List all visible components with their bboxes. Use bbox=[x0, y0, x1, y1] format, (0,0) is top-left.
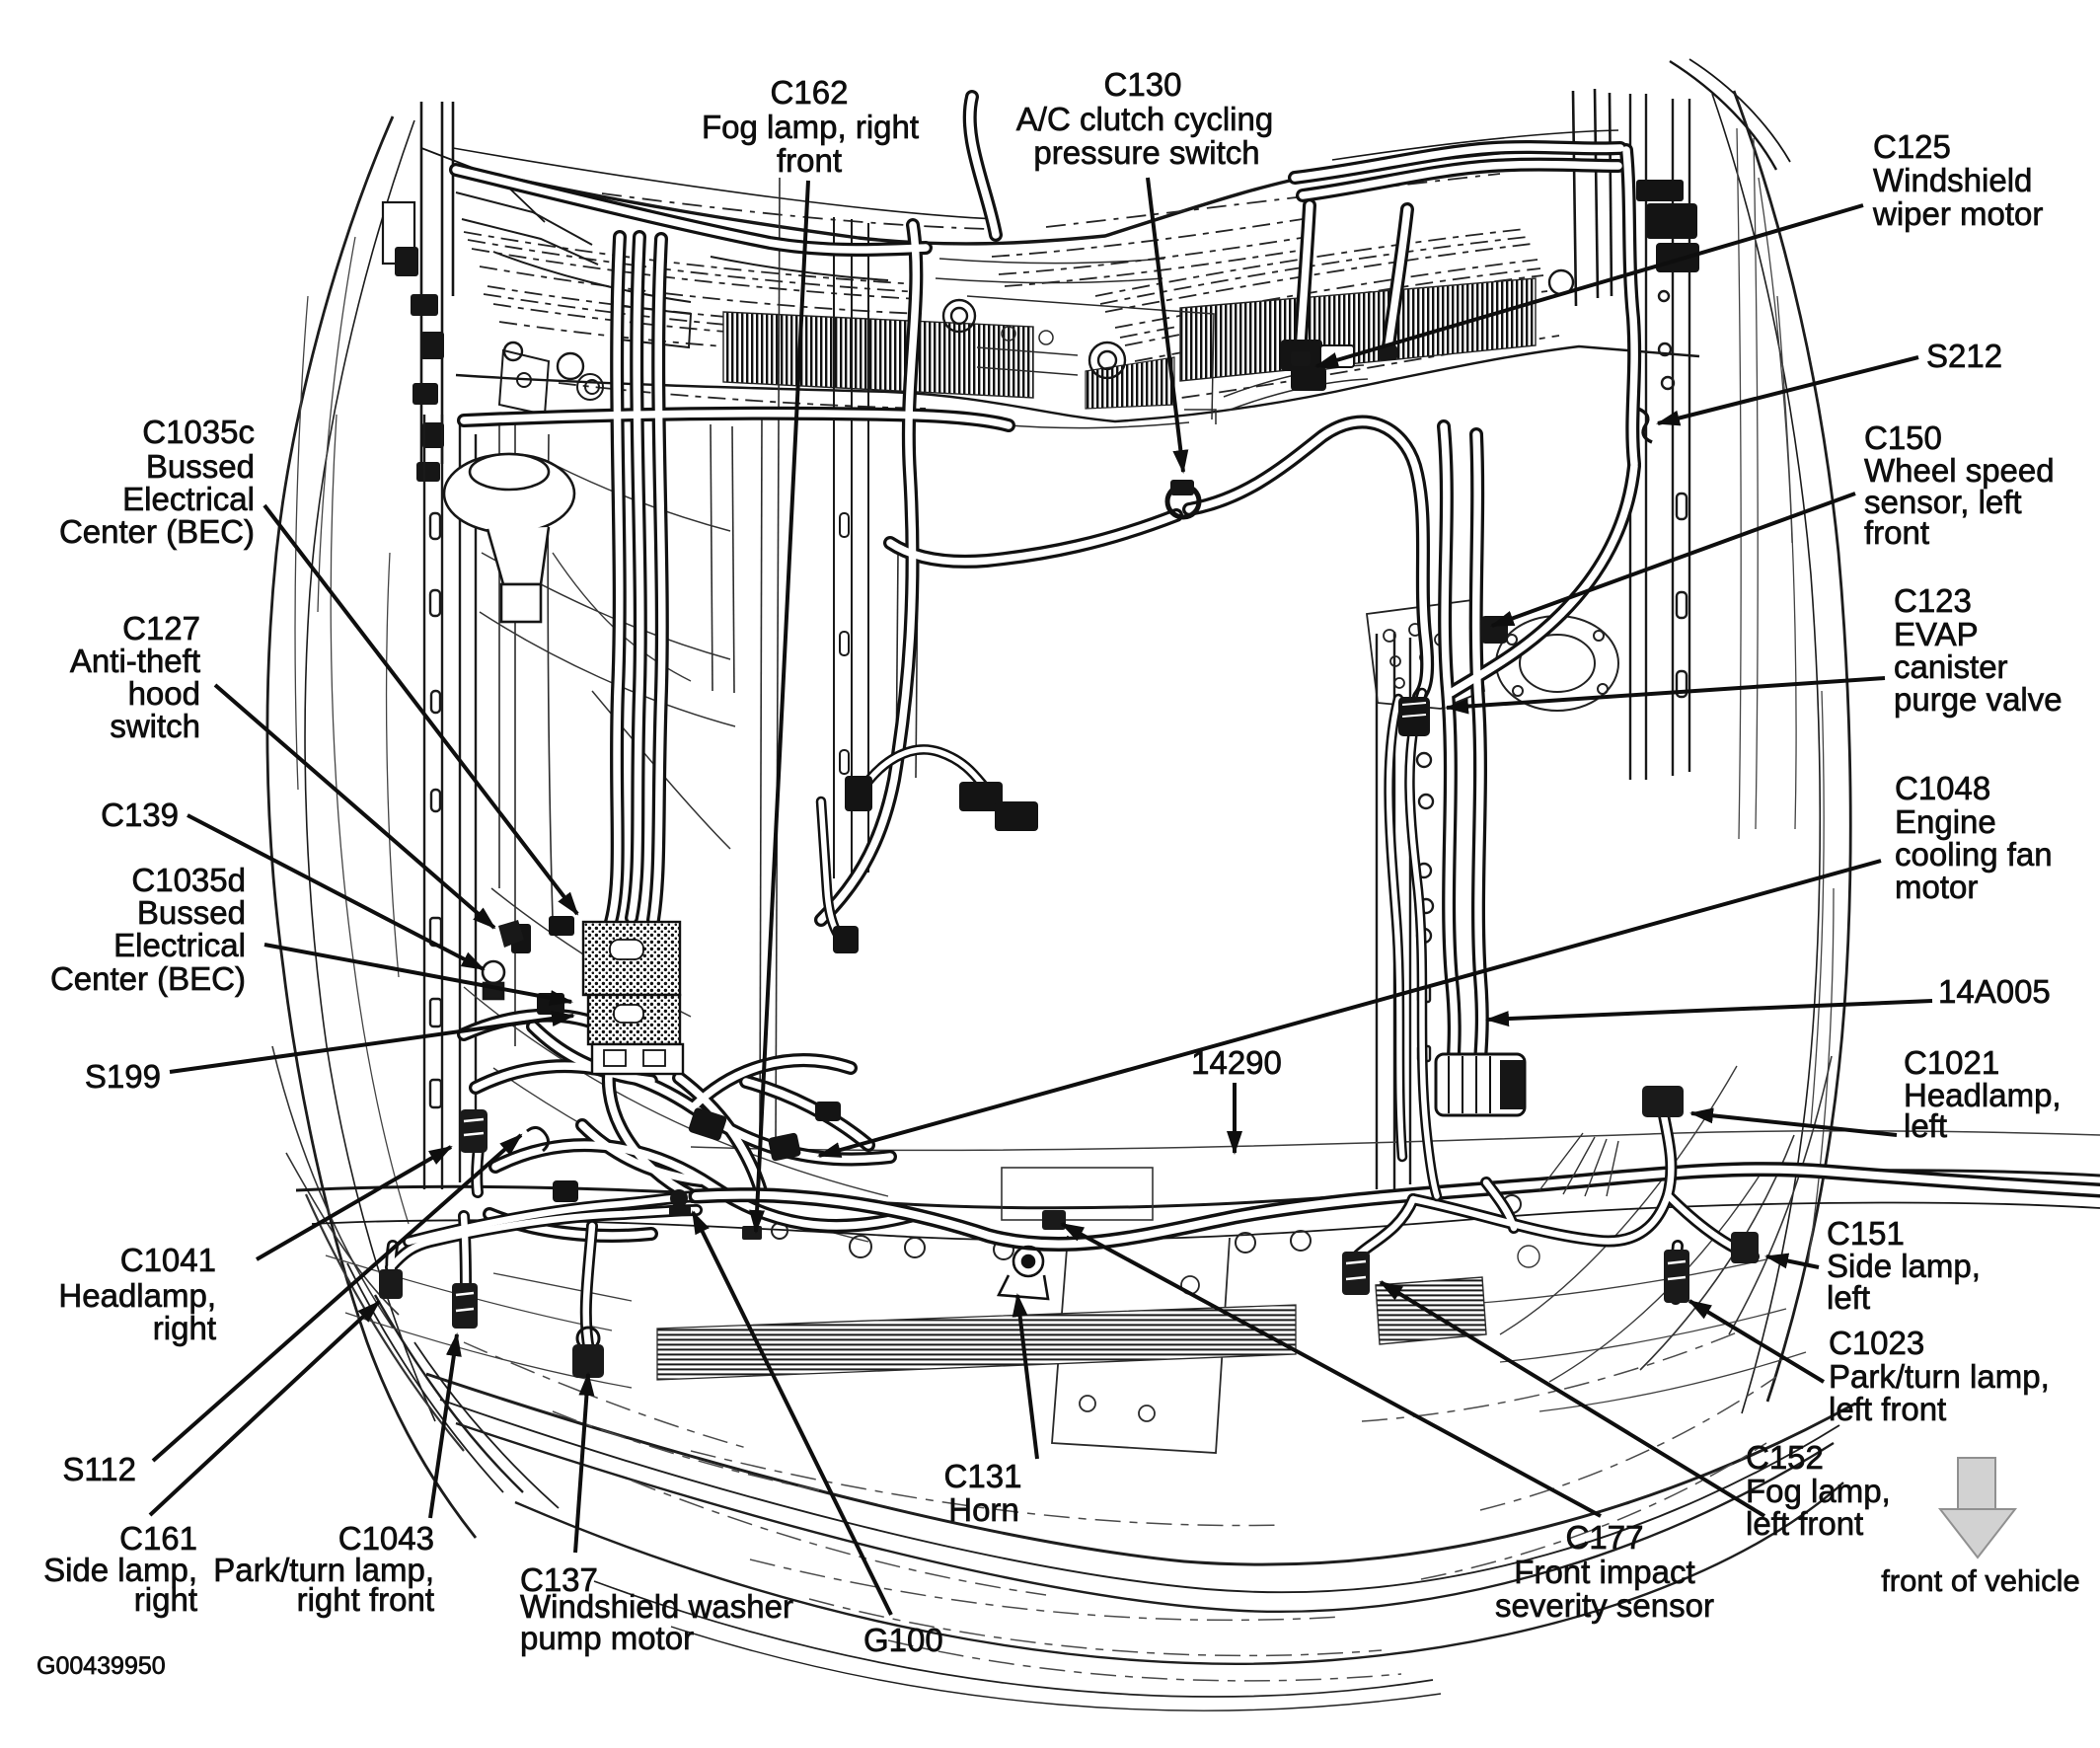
svg-text:C1035d: C1035d bbox=[131, 862, 246, 898]
svg-text:Center (BEC): Center (BEC) bbox=[50, 960, 246, 997]
svg-text:EVAP: EVAP bbox=[1894, 616, 1979, 652]
svg-text:pump motor: pump motor bbox=[520, 1620, 694, 1656]
svg-text:Headlamp,: Headlamp, bbox=[58, 1277, 216, 1314]
svg-text:right: right bbox=[134, 1581, 197, 1618]
svg-text:14290: 14290 bbox=[1191, 1044, 1282, 1081]
svg-text:Windshield: Windshield bbox=[1873, 162, 2032, 198]
svg-text:right: right bbox=[153, 1310, 216, 1346]
svg-text:C151: C151 bbox=[1827, 1215, 1905, 1252]
svg-text:Park/turn lamp,: Park/turn lamp, bbox=[1829, 1358, 2050, 1395]
svg-text:S112: S112 bbox=[62, 1451, 136, 1487]
svg-text:Center (BEC): Center (BEC) bbox=[59, 513, 255, 550]
svg-text:G00439950: G00439950 bbox=[37, 1652, 166, 1680]
svg-text:front: front bbox=[777, 142, 842, 179]
svg-text:Anti-theft: Anti-theft bbox=[70, 643, 200, 679]
svg-text:A/C clutch cycling: A/C clutch cycling bbox=[1016, 101, 1273, 137]
svg-text:severity sensor: severity sensor bbox=[1495, 1587, 1714, 1624]
svg-text:cooling fan: cooling fan bbox=[1895, 836, 2053, 873]
svg-text:front: front bbox=[1864, 514, 1929, 551]
svg-text:C162: C162 bbox=[771, 74, 849, 111]
svg-text:S212: S212 bbox=[1926, 338, 2002, 374]
svg-text:Fog lamp,: Fog lamp, bbox=[1746, 1473, 1891, 1509]
svg-text:C150: C150 bbox=[1864, 419, 1942, 456]
svg-text:C1021: C1021 bbox=[1904, 1044, 1999, 1081]
svg-text:14A005: 14A005 bbox=[1938, 973, 2051, 1010]
svg-text:Electrical: Electrical bbox=[113, 927, 246, 963]
svg-text:G100: G100 bbox=[863, 1622, 943, 1658]
svg-text:switch: switch bbox=[110, 708, 200, 744]
svg-text:front of vehicle: front of vehicle bbox=[1881, 1563, 2080, 1598]
svg-text:Electrical: Electrical bbox=[122, 481, 255, 517]
svg-text:wiper motor: wiper motor bbox=[1872, 195, 2043, 232]
svg-text:left: left bbox=[1904, 1107, 1947, 1144]
svg-text:Front impact: Front impact bbox=[1514, 1554, 1694, 1590]
svg-text:C125: C125 bbox=[1873, 128, 1951, 165]
svg-text:C139: C139 bbox=[101, 797, 179, 833]
svg-text:canister: canister bbox=[1894, 648, 2008, 685]
svg-text:right front: right front bbox=[297, 1581, 434, 1618]
svg-text:Bussed: Bussed bbox=[137, 894, 246, 931]
svg-text:left front: left front bbox=[1746, 1505, 1863, 1542]
svg-text:left front: left front bbox=[1829, 1391, 1946, 1427]
svg-text:hood: hood bbox=[128, 675, 200, 712]
svg-text:purge valve: purge valve bbox=[1894, 681, 2062, 718]
svg-text:C131: C131 bbox=[944, 1458, 1022, 1494]
svg-text:C1035c: C1035c bbox=[142, 414, 255, 450]
svg-text:C1041: C1041 bbox=[120, 1242, 216, 1278]
svg-text:C130: C130 bbox=[1104, 66, 1182, 103]
svg-text:C1048: C1048 bbox=[1895, 770, 1990, 806]
svg-text:C152: C152 bbox=[1746, 1439, 1824, 1476]
svg-text:C123: C123 bbox=[1894, 582, 1972, 619]
svg-text:pressure switch: pressure switch bbox=[1033, 134, 1259, 171]
svg-text:C177: C177 bbox=[1566, 1519, 1644, 1556]
svg-text:C1023: C1023 bbox=[1829, 1325, 1924, 1361]
svg-text:Horn: Horn bbox=[948, 1491, 1019, 1528]
svg-text:left: left bbox=[1827, 1279, 1870, 1316]
svg-text:Bussed: Bussed bbox=[146, 448, 255, 485]
svg-text:motor: motor bbox=[1895, 869, 1978, 905]
svg-text:C127: C127 bbox=[122, 610, 200, 646]
svg-text:Engine: Engine bbox=[1895, 803, 1996, 840]
svg-text:Fog lamp, right: Fog lamp, right bbox=[702, 109, 919, 145]
svg-text:S199: S199 bbox=[85, 1058, 161, 1095]
